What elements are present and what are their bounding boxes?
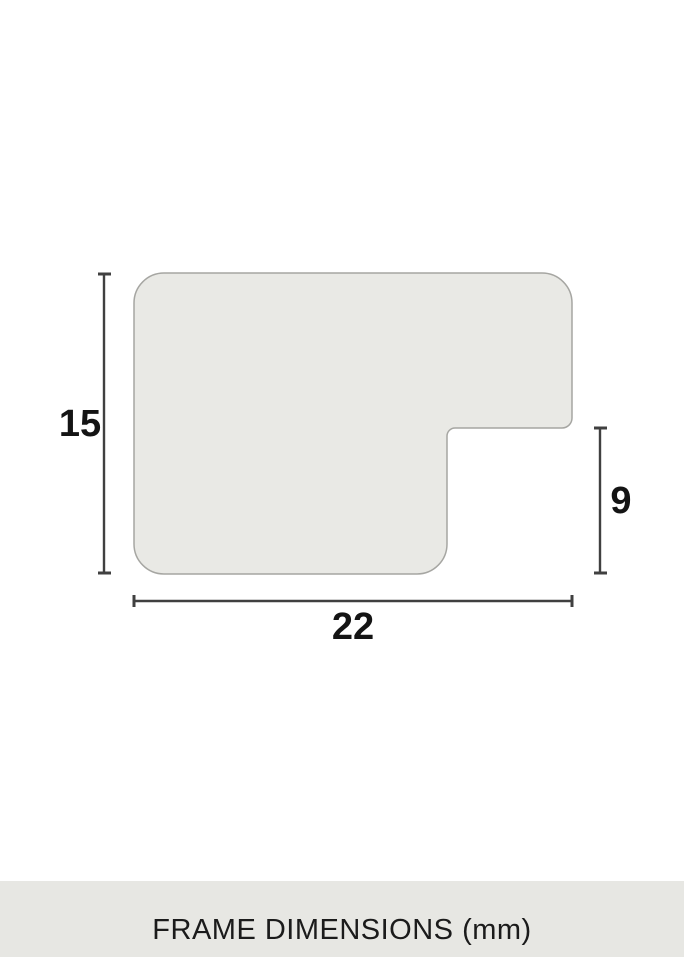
frame-dimensions-page: 15 9 22 FRAME DIMENSIONS (mm) <box>0 0 684 957</box>
depth-dimension-line <box>594 428 607 573</box>
profile-diagram <box>0 0 684 880</box>
depth-dimension-label: 9 <box>610 482 631 520</box>
frame-profile-shape <box>134 273 572 574</box>
height-dimension-label: 15 <box>59 405 101 443</box>
footer-caption: FRAME DIMENSIONS (mm) <box>152 914 531 947</box>
footer-band: FRAME DIMENSIONS (mm) <box>0 881 684 957</box>
width-dimension-label: 22 <box>332 608 374 646</box>
